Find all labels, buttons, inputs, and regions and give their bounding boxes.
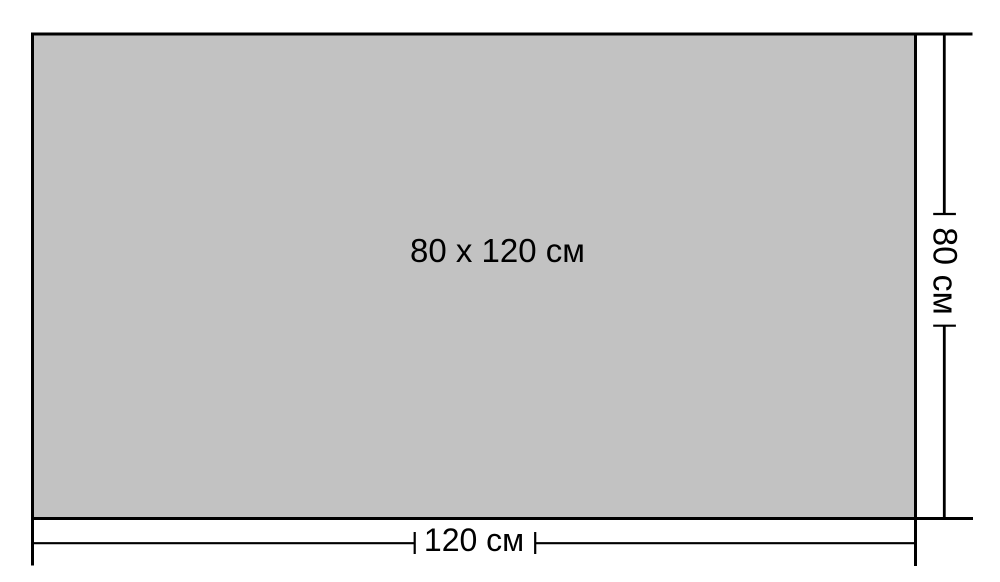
svg-text:80 см: 80 см [925, 227, 963, 315]
svg-text:120 см: 120 см [424, 522, 524, 558]
svg-text:80 x 120 см: 80 x 120 см [410, 232, 585, 269]
